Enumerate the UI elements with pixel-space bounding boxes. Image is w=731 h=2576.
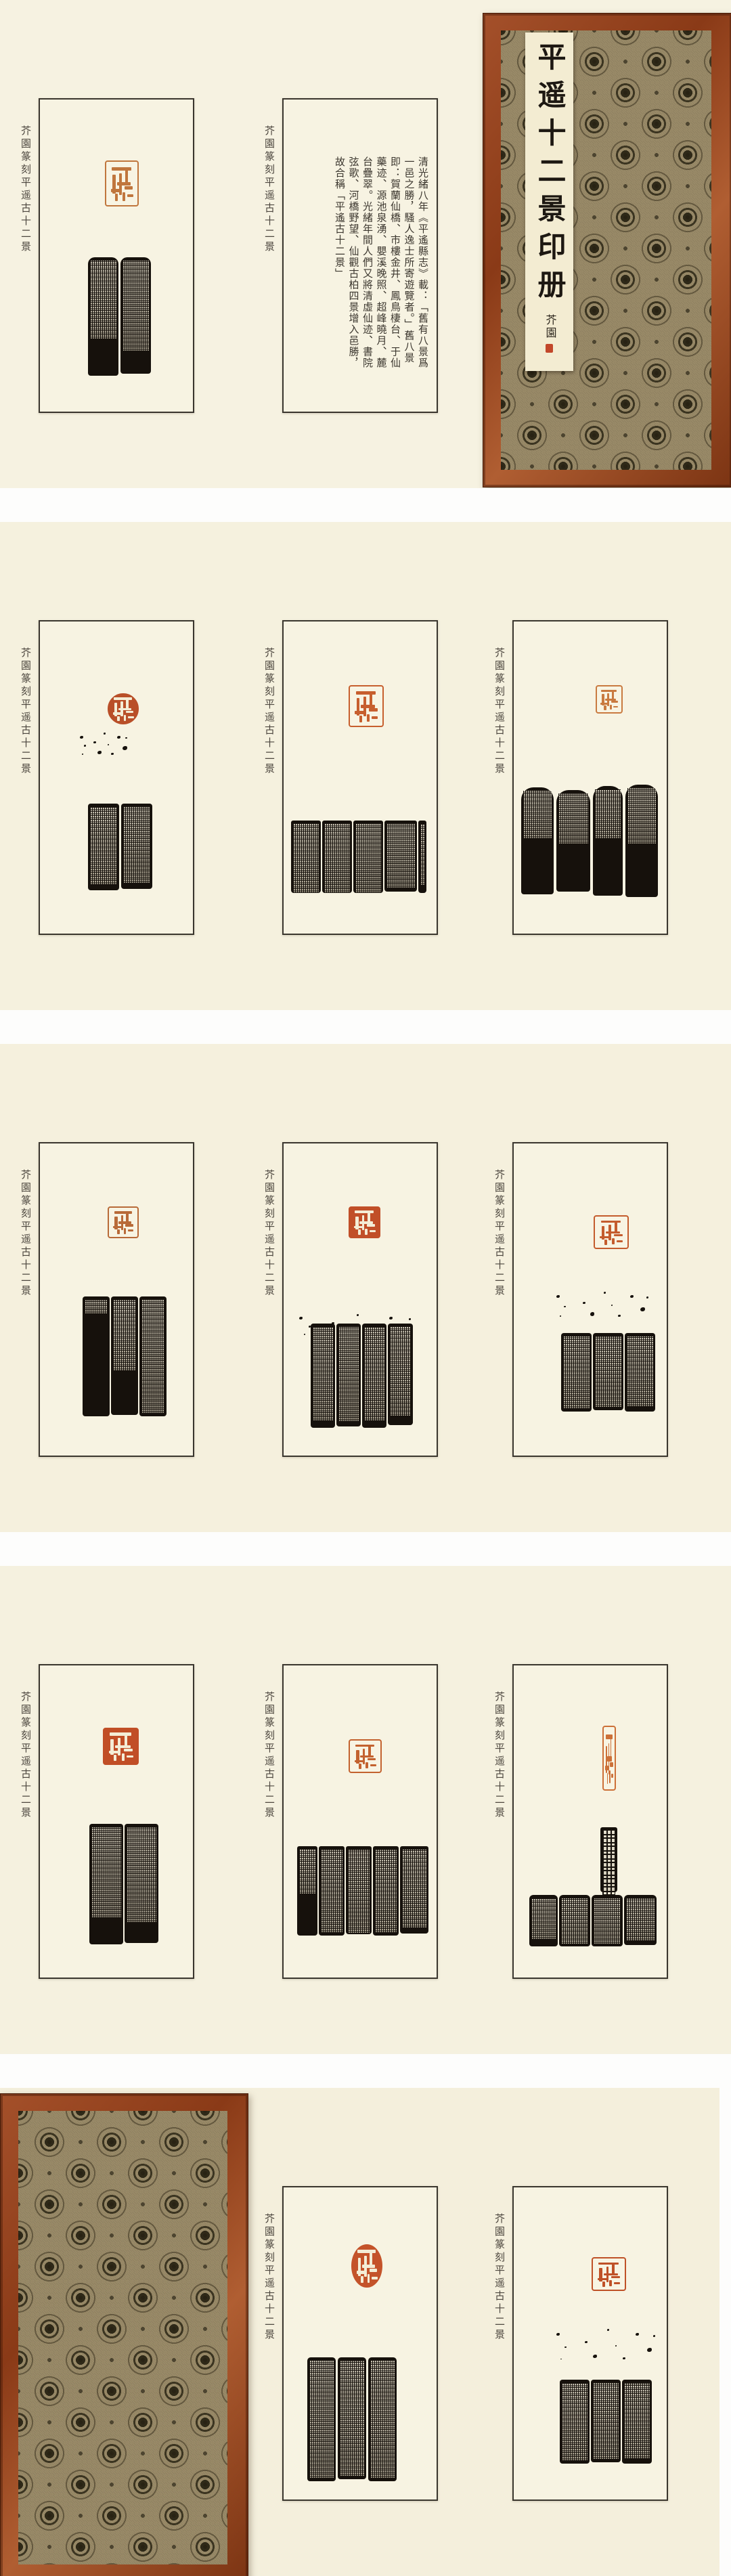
seal-script-stroke (115, 194, 118, 201)
collector-label: 芥園篆刻平遥古十二景 (261, 2213, 276, 2355)
preface-text: 清光緒八年《平遙縣志》載：「舊有八景爲一邑之勝，騷人逸士所寄遊覽者。」舊八景即：… (330, 156, 429, 373)
seal-impression (108, 693, 139, 724)
rubbing-column (83, 1296, 110, 1416)
seal-script-stroke (118, 708, 131, 711)
album-cover-front: 平遥十二景印册芥園 (483, 13, 731, 487)
seal-script-stroke (613, 706, 618, 708)
seal-script-stroke (370, 2269, 378, 2272)
ink-dot (560, 1315, 561, 1317)
collector-label: 芥園篆刻平遥古十二景 (18, 1169, 32, 1311)
seal-script-stroke (604, 1240, 607, 1245)
rubbing-column (89, 1824, 123, 1944)
seal-script-stroke (614, 1234, 623, 1237)
edge-inscription-rubbing (88, 804, 152, 890)
collector-label: 芥園篆刻平遥古十二景 (491, 647, 506, 789)
ink-dot (389, 1317, 393, 1319)
seal-script-stroke (605, 1766, 608, 1770)
rubbing-column (622, 2380, 652, 2464)
seal-script-stroke (610, 1762, 613, 1767)
seal-script-stroke (611, 2276, 620, 2279)
preface-column: 清光緒八年《平遙縣志》載：「舊有八景爲 (416, 156, 430, 373)
rubbing-text-texture (123, 261, 149, 351)
seal-script-stroke (370, 1230, 376, 1232)
album-plate (512, 620, 668, 935)
preface-column: 藥迹、源池泉湧、嬰溪晚照、超峰曉月、麓 (374, 156, 388, 373)
rubbing-column (353, 821, 383, 893)
ink-dot (304, 1334, 305, 1335)
ink-dot (556, 1295, 560, 1298)
preface-column: 即：賀蘭仙橋、市樓金井、鳳鳥棲台、于仙 (388, 156, 402, 373)
seal-script-stroke (123, 192, 125, 201)
edge-inscription-rubbing (311, 1324, 413, 1428)
photo-row-1: 芥園篆刻平遥古十二景芥園篆刻平遥古十二景清光緒八年《平遙縣志》載：「舊有八景爲一… (0, 0, 731, 488)
rubbing-text-texture (386, 824, 415, 888)
rubbing-text-texture (293, 824, 319, 893)
seal-impression (602, 1726, 616, 1791)
seal-script-stroke (354, 1226, 363, 1229)
seal-script-stroke (604, 2273, 618, 2276)
seal-script-stroke (126, 699, 129, 709)
seal-script-stroke (606, 1231, 620, 1234)
seal-script-stroke (368, 1745, 371, 1756)
seal-script-stroke (612, 2263, 615, 2274)
ink-dot (618, 1315, 621, 1317)
seal-script-stroke (117, 1229, 120, 1234)
seal-script-stroke (614, 2282, 620, 2284)
ink-dot (623, 2357, 625, 2359)
rubbing-column (591, 2380, 621, 2462)
seal-impression (108, 1206, 139, 1238)
rubbing-text-texture (375, 1850, 397, 1933)
rubbing-text-texture (348, 1850, 370, 1934)
seal-script-stroke (370, 693, 372, 706)
seal-script-stroke (369, 708, 378, 712)
rubbing-text-texture (309, 2361, 334, 2479)
ink-dot (80, 736, 83, 739)
seal-script-stroke (113, 1226, 122, 1228)
seal-script-stroke (124, 1749, 133, 1751)
rubbing-column (592, 1895, 623, 1946)
rubbing-column (625, 1333, 655, 1412)
ink-dot (630, 1295, 634, 1298)
rubbing-column (561, 1333, 592, 1412)
rubbing-text-texture (531, 1898, 556, 1940)
rubbing-text-texture (563, 1336, 590, 1409)
edge-inscription-rubbing (89, 1824, 158, 1944)
seal-script-stroke (361, 705, 375, 708)
seal-script-stroke (609, 2280, 612, 2286)
ink-dot (583, 1302, 585, 1304)
seal-script-stroke (112, 167, 131, 171)
seal-script-stroke (127, 194, 133, 197)
rubbing-text-texture (602, 1831, 615, 1896)
seal-script-stroke (609, 1770, 610, 1783)
rubbing-column (338, 2357, 366, 2479)
rubbing-text-texture (370, 2361, 395, 2479)
seal-script-stroke (361, 2276, 363, 2284)
seal-script-stroke (124, 715, 127, 721)
ink-dot (585, 2341, 588, 2343)
seal-script-stroke (125, 186, 133, 190)
seal-script-stroke (600, 703, 608, 705)
seal-script-stroke (124, 1228, 126, 1234)
ink-splatter (554, 2323, 656, 2363)
seal-script-stroke (602, 2282, 605, 2287)
ink-dot (646, 1296, 648, 1298)
edge-inscription-rubbing (529, 1895, 657, 1946)
rubbing-text-texture (562, 2383, 588, 2461)
collector-label: 芥園篆刻平遥古十二景 (18, 125, 32, 267)
album-plate (282, 620, 438, 935)
rubbing-column (373, 1846, 399, 1936)
rubbing-column (418, 821, 426, 893)
album-plate (282, 2186, 438, 2501)
seal-script-stroke (611, 701, 618, 703)
photo-edge-margin (719, 2088, 731, 2576)
seal-script-stroke (359, 716, 362, 722)
rubbing-text-texture (338, 1327, 359, 1422)
rubbing-column (400, 1846, 428, 1934)
ink-dot (97, 751, 102, 754)
rubbing-text-texture (123, 807, 150, 883)
ink-dot (299, 1317, 303, 1319)
seal-impression (105, 160, 139, 206)
rubbing-column (346, 1846, 372, 1934)
ink-dot (409, 1318, 411, 1320)
rubbing-text-texture (523, 791, 552, 839)
rubbing-column (368, 2357, 397, 2481)
cover-title: 平遥十二景印册 (529, 42, 570, 307)
rubbing-text-texture (321, 1850, 342, 1933)
rubbing-column (121, 804, 152, 889)
rubbing-column (625, 785, 658, 897)
rubbing-text-texture (90, 807, 117, 885)
rubbing-text-texture (626, 1898, 655, 1941)
seal-script-stroke (367, 1224, 375, 1227)
seal-script-stroke (109, 1751, 119, 1753)
ink-dot (653, 2335, 655, 2337)
album-plate (39, 98, 194, 413)
rubbing-text-texture (558, 793, 588, 844)
brocade-fabric (18, 2111, 227, 2564)
rubbing-text-texture (313, 1327, 333, 1421)
seal-script-stroke (607, 1773, 608, 1784)
collector-label: 芥園篆刻平遥古十二景 (491, 1691, 506, 1833)
ink-dot (357, 1314, 359, 1316)
seal-script-stroke (355, 1760, 364, 1763)
rubbing-column (307, 2357, 336, 2481)
seal-script-stroke (601, 690, 616, 692)
collector-label: 芥園篆刻平遥古十二景 (18, 647, 32, 789)
ink-dot (564, 2346, 567, 2349)
collector-label: 芥園篆刻平遥古十二景 (261, 125, 276, 267)
collector-label: 芥園篆刻平遥古十二景 (18, 1691, 32, 1833)
seal-script-stroke (611, 1737, 611, 1758)
preface-column: 一邑之勝，騷人逸士所寄遊覽者。」舊八景 (401, 156, 416, 373)
photo-row-4: 芥園篆刻平遥古十二景芥園篆刻平遥古十二景芥園篆刻平遥古十二景 (0, 1566, 731, 2054)
seal-script-stroke (355, 711, 364, 714)
edge-inscription-rubbing (521, 785, 658, 897)
rubbing-column (559, 1895, 590, 1946)
seal-script-stroke (114, 697, 132, 700)
seal-script-stroke (362, 2265, 375, 2268)
rubbing-column (311, 1324, 335, 1428)
album-plate (39, 620, 194, 935)
photo-row-5: 芥園篆刻平遥古十二景芥園篆刻平遥古十二景 (0, 2088, 731, 2576)
seal-script-stroke (117, 716, 120, 721)
seal-impression (103, 1728, 139, 1765)
rubbing-column (88, 257, 118, 376)
seal-script-stroke (110, 1732, 131, 1735)
seal-script-stroke (372, 2277, 377, 2279)
seal-script-stroke (365, 1229, 368, 1235)
seal-script-stroke (115, 1745, 130, 1748)
edge-inscription-rubbing (600, 1827, 617, 1892)
seal-script-stroke (114, 1211, 132, 1213)
ink-dot (82, 754, 83, 755)
seal-script-stroke (368, 2274, 370, 2282)
rubbing-column (139, 1296, 167, 1416)
seal-impression (349, 685, 384, 727)
seal-script-stroke (612, 1238, 615, 1244)
album-plate (512, 1664, 668, 1979)
seal-script-stroke (357, 2250, 376, 2253)
collector-label: 芥園篆刻平遥古十二景 (491, 1169, 506, 1311)
rubbing-text-texture (594, 1898, 621, 1944)
ink-dot (636, 2333, 639, 2336)
seal-script-stroke (370, 2252, 372, 2266)
seal-impression (351, 2244, 382, 2288)
seal-script-stroke (125, 1224, 133, 1226)
seal-script-stroke (126, 711, 134, 714)
edge-inscription-rubbing (307, 2357, 397, 2481)
seal-impression (592, 2257, 626, 2291)
rubbing-text-texture (624, 2383, 650, 2459)
ink-dot (611, 1305, 613, 1306)
seal-script-stroke (607, 1756, 612, 1761)
album-plate (39, 1142, 194, 1457)
preface-column: 台疊翠。光緒年間人們又將清虛仙迹、書院 (360, 156, 374, 373)
rubbing-text-texture (627, 1336, 653, 1407)
seal-script-stroke (117, 182, 131, 185)
collector-label: 芥園篆刻平遥古十二景 (261, 647, 276, 789)
seal-impression (349, 1739, 382, 1773)
album-plate: 清光緒八年《平遙縣志》載：「舊有八景爲一邑之勝，騷人逸士所寄遊覽者。」舊八景即：… (282, 98, 438, 413)
seal-script-stroke (372, 716, 378, 719)
seal-script-stroke (365, 1762, 368, 1768)
rubbing-column (593, 786, 623, 896)
ink-dot (604, 1292, 606, 1294)
seal-script-stroke (358, 1229, 361, 1235)
preface-column: 故合稱「平遙古十二景」 (332, 156, 347, 373)
ink-dot (117, 736, 120, 739)
rubbing-text-texture (390, 1327, 411, 1416)
seal-script-stroke (611, 1774, 613, 1778)
ink-dot (111, 753, 114, 755)
album-plate (39, 1664, 194, 1979)
rubbing-text-texture (127, 1827, 156, 1923)
rubbing-text-texture (113, 1300, 136, 1371)
rubbing-column (336, 1324, 361, 1426)
preface-column: 弦歌、河橋野望、仙觀古柏四景增入邑勝， (346, 156, 360, 373)
rubbing-text-texture (90, 261, 116, 339)
seal-script-stroke (357, 2271, 365, 2274)
seal-script-stroke (359, 1764, 361, 1769)
ink-dot (125, 737, 127, 739)
ink-dot (108, 744, 109, 745)
rubbing-column (388, 1324, 413, 1425)
rubbing-text-texture (340, 2361, 364, 2476)
seal-script-stroke (355, 1210, 374, 1213)
edge-inscription-rubbing (297, 1846, 428, 1936)
photo-row-3: 芥園篆刻平遥古十二景芥園篆刻平遥古十二景芥園篆刻平遥古十二景 (0, 1044, 731, 1532)
ink-dot (593, 2355, 597, 2358)
ink-dot (123, 746, 127, 750)
rubbing-text-texture (595, 1336, 621, 1407)
seal-script-stroke (111, 189, 120, 192)
ink-dot (560, 2359, 562, 2360)
ink-dot (607, 2329, 609, 2331)
seal-script-stroke (114, 1755, 117, 1761)
rubbing-text-texture (402, 1850, 426, 1928)
rubbing-column (362, 1324, 386, 1428)
rubbing-column (624, 1895, 657, 1945)
seal-script-stroke (356, 691, 376, 695)
rubbing-text-texture (420, 824, 424, 886)
rubbing-text-texture (85, 1300, 108, 1314)
seal-script-stroke (598, 2263, 618, 2265)
rubbing-column (120, 257, 151, 374)
ink-dot (647, 2348, 652, 2352)
seal-script-stroke (359, 1221, 373, 1224)
rubbing-column (322, 821, 352, 893)
rubbing-text-texture (299, 1850, 315, 1894)
album-plate (512, 2186, 668, 2501)
ink-dot (615, 2345, 617, 2346)
ink-dot (93, 741, 96, 743)
rubbing-column (297, 1846, 317, 1936)
rubbing-column (125, 1824, 158, 1943)
rubbing-column (593, 1333, 623, 1410)
rubbing-text-texture (627, 788, 656, 844)
seal-script-stroke (128, 716, 133, 718)
ink-dot (640, 1307, 645, 1311)
edge-inscription-rubbing (88, 257, 151, 376)
rubbing-column (319, 1846, 345, 1936)
rubbing-text-texture (355, 824, 381, 893)
seal-script-stroke (368, 1758, 376, 1761)
edge-inscription-rubbing (560, 2380, 652, 2464)
seal-impression (596, 685, 623, 714)
collector-label: 芥園篆刻平遥古十二景 (491, 2213, 506, 2355)
ink-splatter (554, 1287, 649, 1319)
rubbing-column (521, 787, 554, 894)
cover-signature: 芥園 (541, 314, 558, 340)
rubbing-text-texture (324, 824, 350, 893)
ink-dot (590, 1312, 594, 1315)
rubbing-text-texture (593, 2383, 619, 2460)
album-plate (512, 1142, 668, 1457)
edge-inscription-rubbing (561, 1333, 655, 1412)
album-cover-back (0, 2093, 248, 2576)
photo-row-2: 芥園篆刻平遥古十二景芥園篆刻平遥古十二景芥園篆刻平遥古十二景 (0, 522, 731, 1010)
seal-script-stroke (610, 705, 612, 710)
seal-impression (349, 1206, 380, 1238)
seal-script-stroke (600, 1236, 609, 1239)
seal-script-stroke (122, 1753, 125, 1761)
seal-script-stroke (601, 1221, 621, 1223)
rubbing-column (560, 2380, 590, 2464)
rubbing-text-texture (364, 1327, 384, 1421)
rubbing-text-texture (91, 1827, 121, 1918)
seal-script-stroke (125, 169, 128, 183)
rubbing-text-texture (595, 789, 621, 839)
seal-album-collage: 芥園篆刻平遥古十二景芥園篆刻平遥古十二景清光緒八年《平遙縣志》載：「舊有八景爲一… (0, 0, 731, 2576)
seal-script-stroke (598, 2278, 607, 2281)
seal-script-stroke (360, 1755, 374, 1758)
ink-dot (104, 733, 106, 735)
album-plate (282, 1664, 438, 1979)
seal-script-stroke (615, 1221, 617, 1232)
cover-title-slip: 平遥十二景印册芥園 (525, 32, 573, 371)
rubbing-column (88, 804, 119, 890)
rubbing-column (111, 1296, 138, 1415)
rubbing-column (556, 790, 590, 892)
seal-script-stroke (606, 1734, 613, 1739)
seal-script-stroke (127, 1755, 133, 1758)
seal-impression (594, 1215, 629, 1249)
seal-script-stroke (128, 1229, 133, 1231)
seal-script-stroke (617, 1240, 623, 1242)
seal-script-stroke (367, 714, 370, 722)
seal-script-stroke (125, 1734, 128, 1746)
rubbing-text-texture (141, 1300, 164, 1414)
rubbing-column (529, 1895, 558, 1946)
seal-script-stroke (604, 705, 606, 710)
collector-label: 芥園篆刻平遥古十二景 (261, 1691, 276, 1833)
edge-inscription-rubbing (291, 821, 426, 893)
cover-seal-mark (546, 344, 553, 353)
rubbing-column (600, 1827, 617, 1892)
rubbing-column (291, 821, 321, 893)
seal-script-stroke (113, 712, 122, 715)
rubbing-column (384, 821, 417, 892)
album-plate (282, 1142, 438, 1457)
ink-splatter (79, 728, 127, 757)
ink-dot (556, 2333, 560, 2336)
rubbing-text-texture (561, 1898, 588, 1944)
seal-script-stroke (370, 1764, 376, 1766)
collector-label: 芥園篆刻平遥古十二景 (261, 1169, 276, 1311)
seal-script-stroke (355, 1745, 374, 1747)
ink-dot (564, 1306, 566, 1308)
ink-dot (84, 745, 86, 747)
edge-inscription-rubbing (83, 1296, 167, 1416)
